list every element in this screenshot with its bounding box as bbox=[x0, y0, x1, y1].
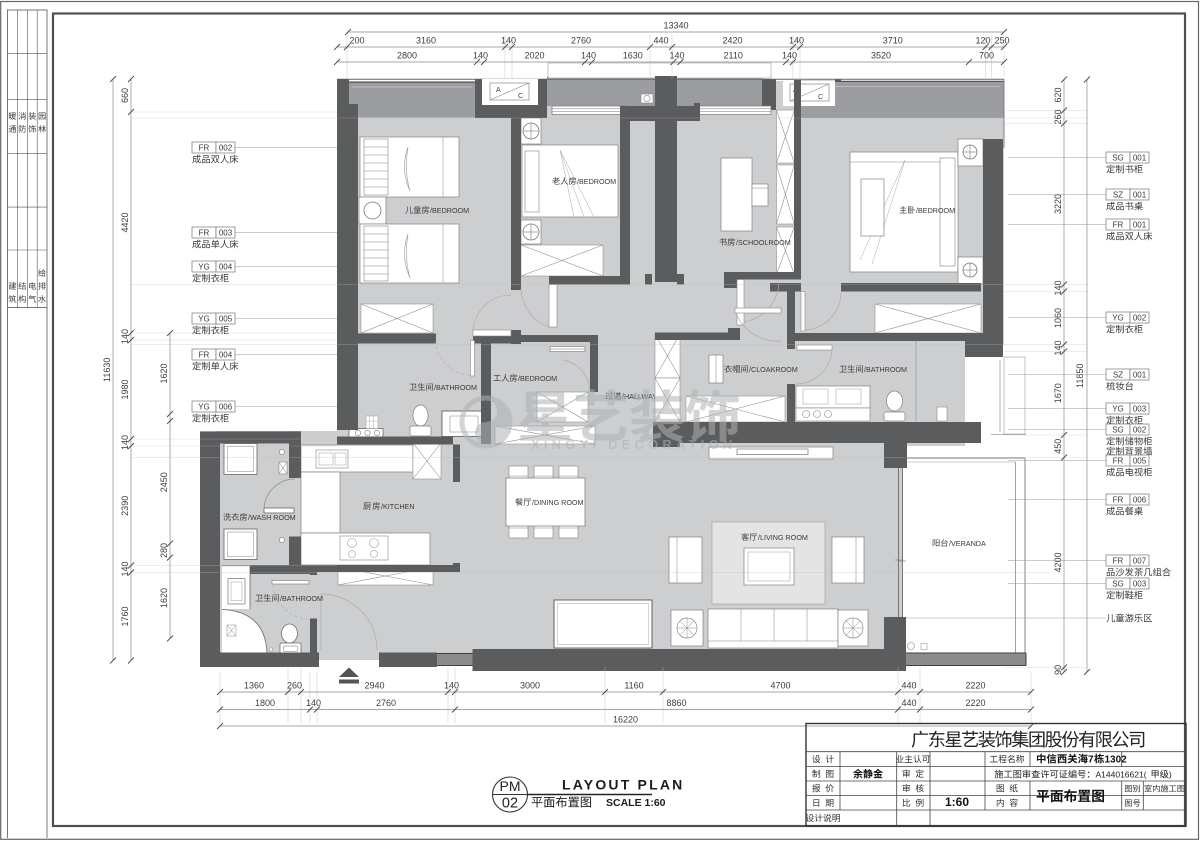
svg-text:FR: FR bbox=[1113, 457, 1124, 466]
svg-text:140: 140 bbox=[120, 561, 130, 576]
svg-text:260: 260 bbox=[1053, 109, 1063, 124]
svg-text:2420: 2420 bbox=[722, 36, 742, 46]
svg-text:003: 003 bbox=[1133, 405, 1147, 414]
svg-text:/CLOAKROOM: /CLOAKROOM bbox=[749, 365, 798, 374]
svg-text:XINGYI DECORATION: XINGYI DECORATION bbox=[531, 437, 737, 452]
svg-text:140: 140 bbox=[444, 681, 459, 691]
svg-text:/LIVING ROOM: /LIVING ROOM bbox=[758, 533, 808, 542]
svg-text:/BATHROOM: /BATHROOM bbox=[434, 383, 477, 392]
svg-text:2020: 2020 bbox=[524, 51, 544, 61]
svg-text:003: 003 bbox=[1133, 580, 1147, 589]
svg-text:003: 003 bbox=[219, 229, 233, 238]
svg-text:FR: FR bbox=[1113, 221, 1124, 230]
svg-text:1980: 1980 bbox=[120, 379, 130, 399]
svg-text:C: C bbox=[818, 94, 823, 101]
svg-text:004: 004 bbox=[219, 351, 233, 360]
svg-text:440: 440 bbox=[653, 36, 668, 46]
svg-text:11850: 11850 bbox=[1075, 364, 1085, 388]
svg-text:1060: 1060 bbox=[1053, 308, 1063, 328]
svg-text:3520: 3520 bbox=[871, 51, 891, 61]
svg-text:FR: FR bbox=[199, 229, 210, 238]
svg-text:1160: 1160 bbox=[624, 681, 643, 691]
svg-text:3000: 3000 bbox=[520, 681, 540, 691]
svg-text:7: 7 bbox=[1088, 755, 1094, 766]
svg-text:620: 620 bbox=[1053, 87, 1063, 102]
svg-text:140: 140 bbox=[473, 51, 488, 61]
svg-text:SG: SG bbox=[1112, 426, 1124, 435]
svg-text:A144016621(: A144016621( bbox=[1096, 770, 1147, 780]
svg-text:/BATHROOM: /BATHROOM bbox=[864, 365, 907, 374]
svg-text:440: 440 bbox=[901, 681, 916, 691]
svg-text:/BEDROOM: /BEDROOM bbox=[518, 374, 557, 383]
svg-text:280: 280 bbox=[159, 543, 169, 558]
svg-text:4200: 4200 bbox=[1053, 552, 1063, 572]
svg-text:2390: 2390 bbox=[120, 496, 130, 516]
svg-text:YG: YG bbox=[198, 403, 210, 412]
svg-text:SZ: SZ bbox=[1113, 371, 1123, 380]
svg-text:/DINING ROOM: /DINING ROOM bbox=[532, 498, 584, 507]
svg-text:2450: 2450 bbox=[159, 472, 169, 492]
svg-text:A: A bbox=[496, 87, 501, 94]
svg-text:1:60: 1:60 bbox=[945, 795, 969, 809]
svg-text:/BEDROOM: /BEDROOM bbox=[916, 206, 955, 215]
svg-text:90: 90 bbox=[1053, 665, 1063, 675]
svg-text:660: 660 bbox=[120, 88, 130, 103]
svg-text:2760: 2760 bbox=[571, 36, 591, 46]
svg-text:002: 002 bbox=[219, 144, 233, 153]
svg-text:140: 140 bbox=[120, 435, 130, 450]
svg-text:11630: 11630 bbox=[102, 358, 112, 382]
svg-text:PM: PM bbox=[500, 778, 521, 794]
svg-text:SZ: SZ bbox=[1113, 191, 1123, 200]
svg-text:/BEDROOM: /BEDROOM bbox=[577, 177, 616, 186]
svg-text:1620: 1620 bbox=[159, 363, 169, 383]
svg-text:002: 002 bbox=[1133, 426, 1147, 435]
svg-text:/KITCHEN: /KITCHEN bbox=[381, 502, 415, 511]
svg-text:002: 002 bbox=[1133, 314, 1147, 323]
svg-text:YG: YG bbox=[198, 315, 210, 324]
svg-text:SG: SG bbox=[1112, 154, 1124, 163]
svg-text:/BEDROOM: /BEDROOM bbox=[430, 206, 469, 215]
svg-text:1630: 1630 bbox=[623, 51, 643, 61]
svg-text:140: 140 bbox=[1053, 340, 1063, 355]
svg-text:FR: FR bbox=[1113, 557, 1124, 566]
svg-text:140: 140 bbox=[306, 698, 321, 708]
svg-text:YG: YG bbox=[1112, 314, 1124, 323]
svg-text:2760: 2760 bbox=[376, 698, 396, 708]
svg-text:SCALE 1:60: SCALE 1:60 bbox=[606, 797, 666, 809]
svg-text:250: 250 bbox=[994, 36, 1009, 46]
svg-text:1360: 1360 bbox=[244, 681, 264, 691]
svg-text:16220: 16220 bbox=[613, 715, 638, 725]
svg-text:3710: 3710 bbox=[883, 36, 903, 46]
svg-text:001: 001 bbox=[1133, 371, 1147, 380]
svg-text:YG: YG bbox=[1112, 405, 1124, 414]
svg-text:/VERANDA: /VERANDA bbox=[949, 539, 986, 548]
svg-text:YG: YG bbox=[198, 263, 210, 272]
svg-text:1620: 1620 bbox=[159, 588, 169, 608]
svg-text:13340: 13340 bbox=[663, 21, 688, 31]
svg-text:4420: 4420 bbox=[120, 212, 130, 232]
svg-text:): ) bbox=[1169, 770, 1172, 780]
svg-text:1670: 1670 bbox=[1053, 383, 1063, 403]
svg-text:1302: 1302 bbox=[1105, 755, 1128, 766]
svg-text:FR: FR bbox=[199, 351, 210, 360]
svg-text:2800: 2800 bbox=[397, 51, 417, 61]
svg-text:140: 140 bbox=[669, 51, 684, 61]
svg-text:140: 140 bbox=[1053, 280, 1063, 295]
svg-text:001: 001 bbox=[1133, 191, 1147, 200]
svg-text:005: 005 bbox=[1133, 457, 1147, 466]
svg-text:FR: FR bbox=[199, 144, 210, 153]
svg-text:006: 006 bbox=[219, 403, 233, 412]
svg-text:3220: 3220 bbox=[1053, 194, 1063, 214]
svg-text:LAYOUT PLAN: LAYOUT PLAN bbox=[562, 777, 684, 793]
svg-text:260: 260 bbox=[287, 681, 302, 691]
svg-text:FR: FR bbox=[1113, 496, 1124, 505]
svg-text:2220: 2220 bbox=[965, 681, 985, 691]
svg-text:4700: 4700 bbox=[770, 681, 790, 691]
svg-text:005: 005 bbox=[219, 315, 233, 324]
svg-text:001: 001 bbox=[1133, 154, 1147, 163]
svg-text:007: 007 bbox=[1133, 557, 1147, 566]
svg-text:2110: 2110 bbox=[724, 51, 743, 61]
svg-text:140: 140 bbox=[120, 329, 130, 344]
svg-text:1800: 1800 bbox=[255, 698, 275, 708]
svg-text:1760: 1760 bbox=[120, 606, 130, 626]
svg-text:450: 450 bbox=[1053, 439, 1063, 454]
svg-text:004: 004 bbox=[219, 263, 233, 272]
svg-text:SG: SG bbox=[1112, 580, 1124, 589]
svg-text:120: 120 bbox=[975, 36, 990, 46]
svg-text:140: 140 bbox=[581, 51, 596, 61]
svg-text:2220: 2220 bbox=[965, 698, 985, 708]
svg-text:140: 140 bbox=[501, 36, 516, 46]
svg-text:440: 440 bbox=[901, 698, 916, 708]
svg-text:8860: 8860 bbox=[666, 698, 686, 708]
svg-text:02: 02 bbox=[502, 796, 518, 812]
svg-text:3160: 3160 bbox=[416, 36, 436, 46]
svg-text:/BATHROOM: /BATHROOM bbox=[280, 594, 323, 603]
svg-text:C: C bbox=[518, 93, 523, 100]
svg-text:2940: 2940 bbox=[364, 681, 384, 691]
svg-text:/WASH ROOM: /WASH ROOM bbox=[248, 513, 296, 522]
svg-text:140: 140 bbox=[789, 36, 804, 46]
svg-text:700: 700 bbox=[979, 51, 994, 61]
svg-text:001: 001 bbox=[1133, 221, 1147, 230]
svg-text:006: 006 bbox=[1133, 496, 1147, 505]
svg-text:/SCHOOLROOM: /SCHOOLROOM bbox=[736, 238, 791, 247]
svg-text:200: 200 bbox=[349, 36, 364, 46]
svg-text:140: 140 bbox=[782, 51, 797, 61]
